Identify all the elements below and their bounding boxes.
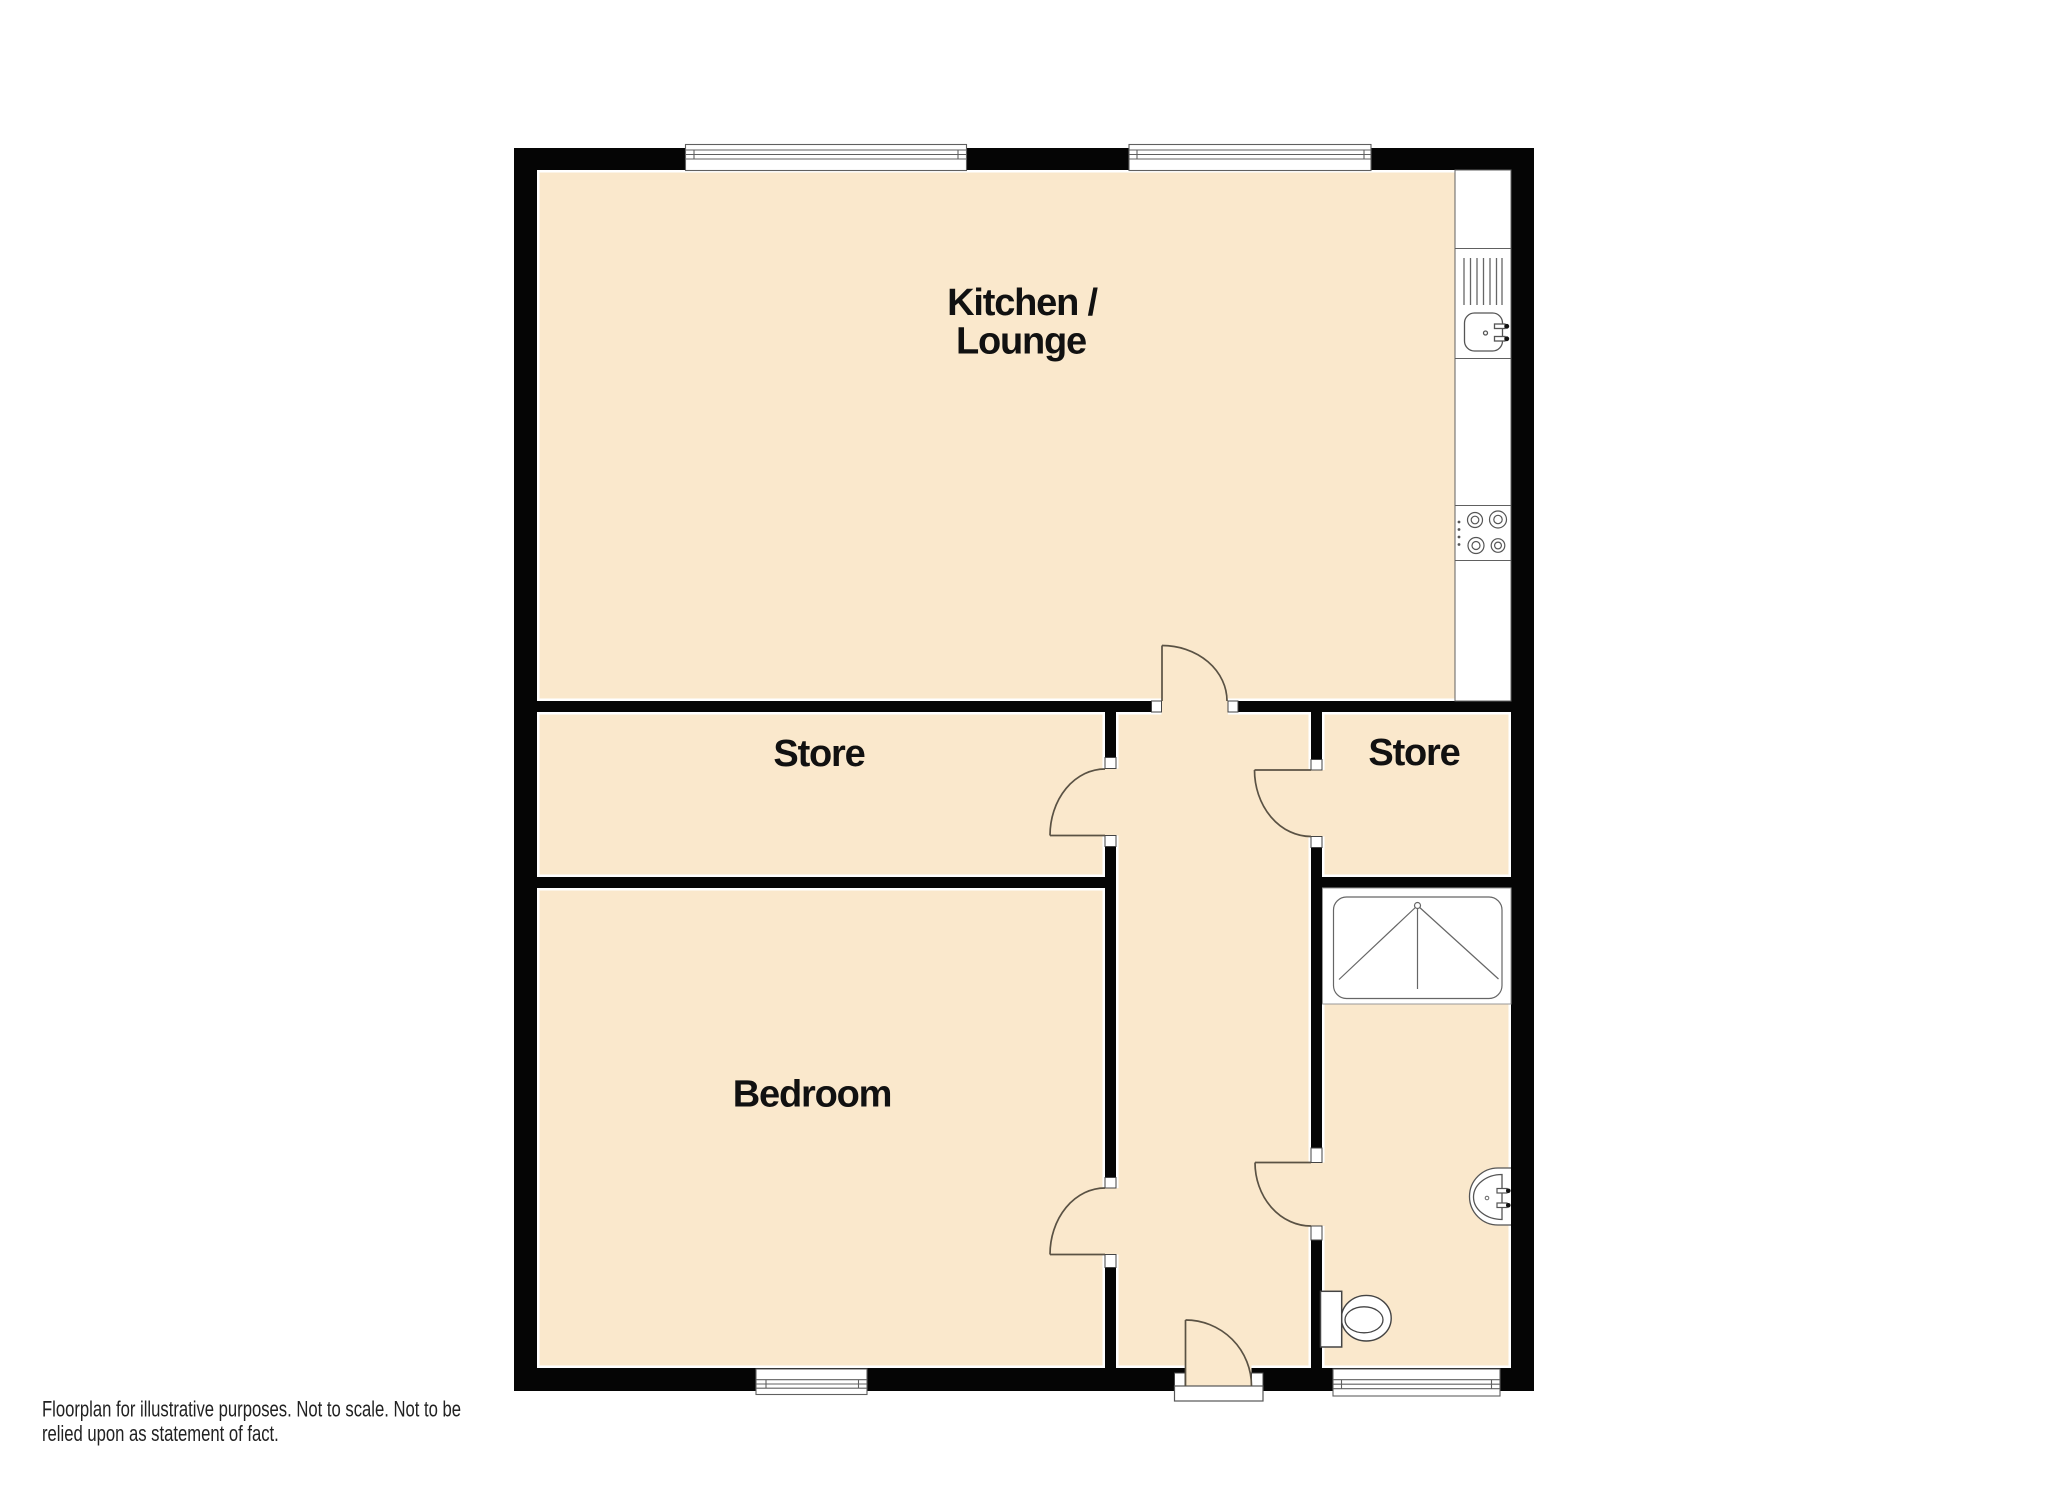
svg-text:Floorplan for illustrative pur: Floorplan for illustrative purposes. Not… [42,1397,461,1422]
svg-text:Store: Store [773,733,864,775]
svg-text:Store: Store [1368,732,1459,774]
svg-text:Bedroom: Bedroom [733,1074,891,1116]
svg-text:relied upon as statement of fa: relied upon as statement of fact. [42,1422,279,1447]
svg-text:Lounge: Lounge [956,321,1086,363]
svg-text:Kitchen /: Kitchen / [947,282,1098,324]
